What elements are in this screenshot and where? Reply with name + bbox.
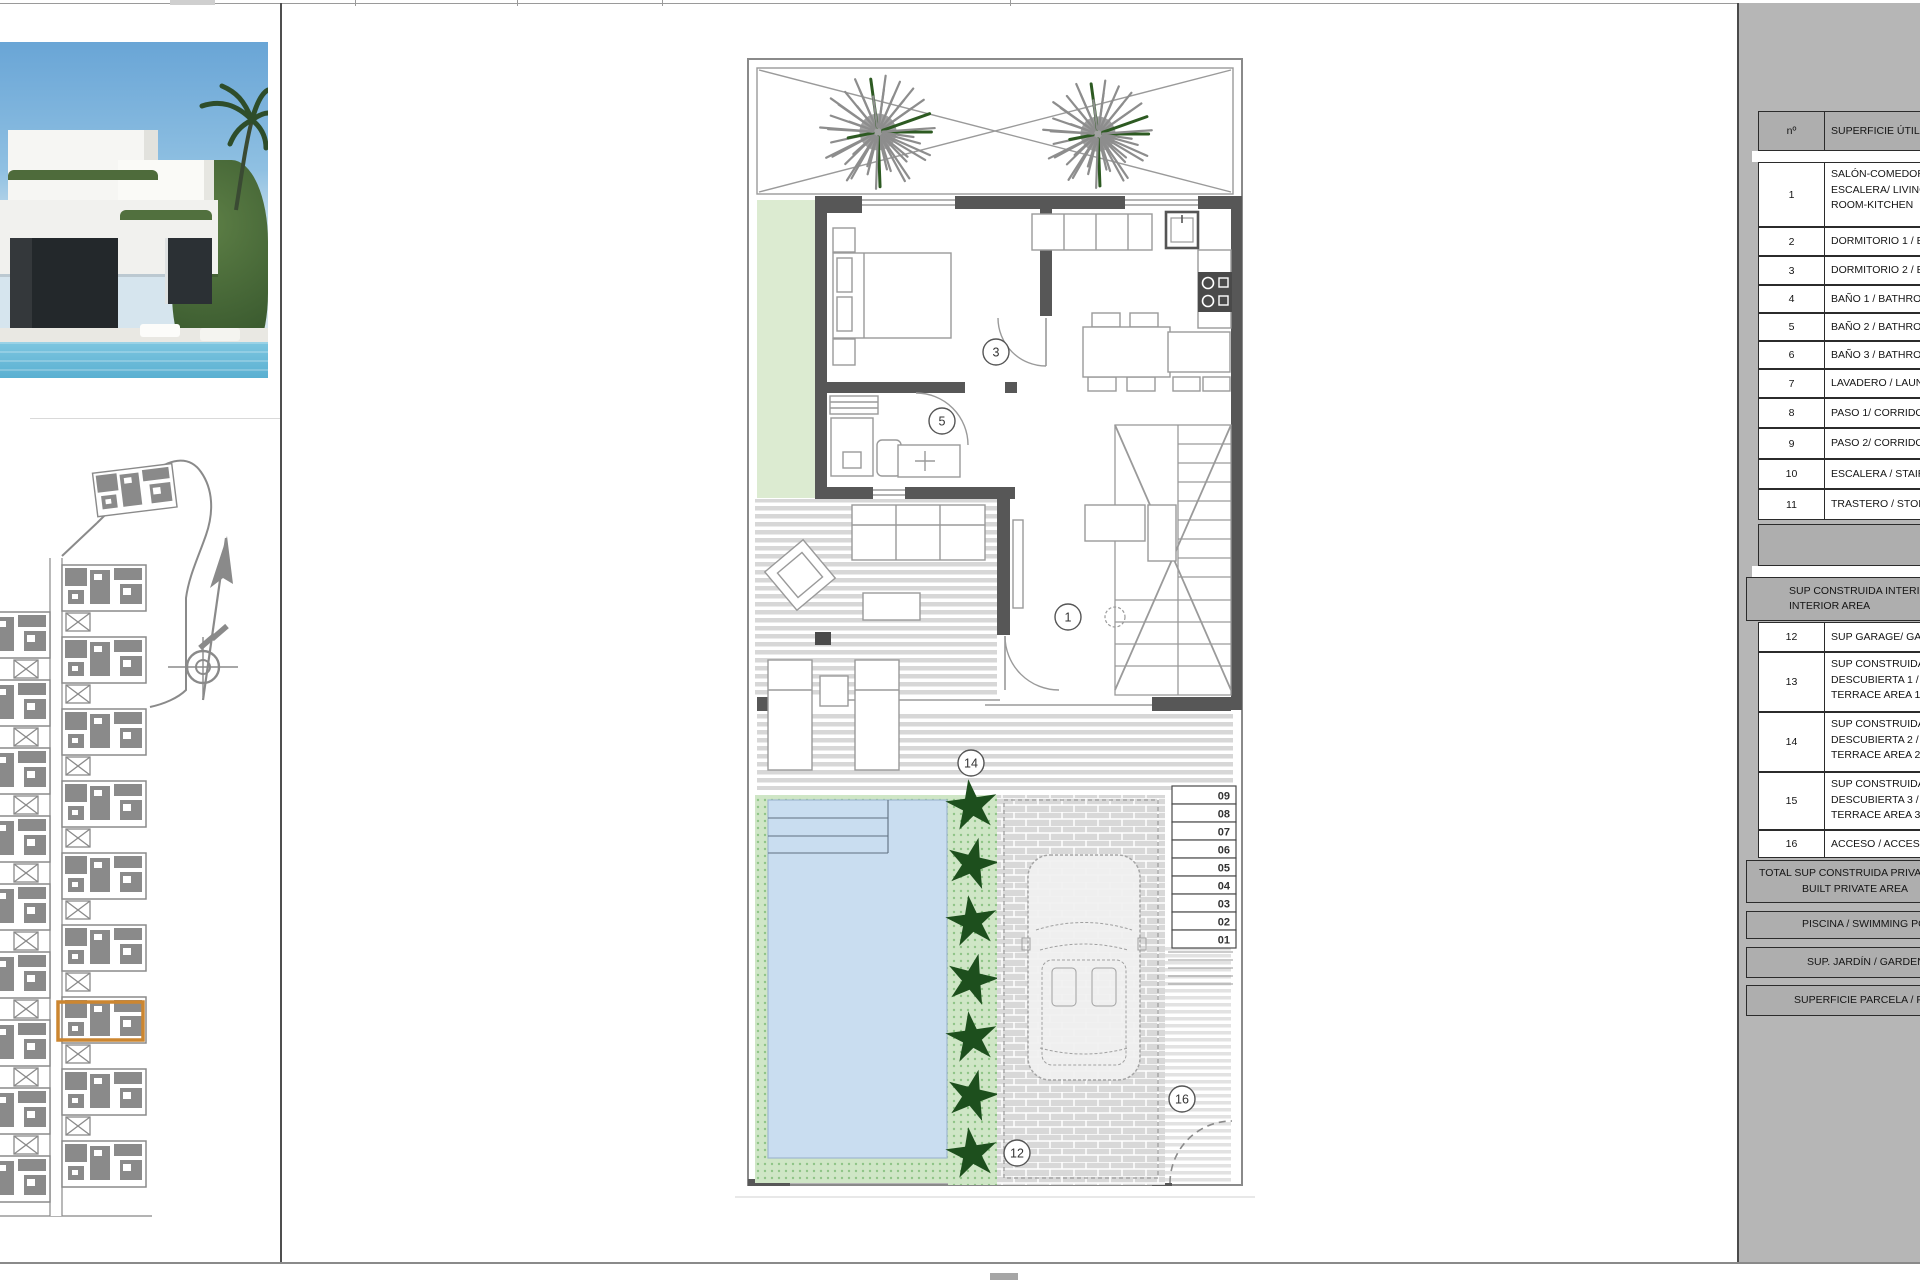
site-house-plot — [62, 997, 146, 1043]
site-house-plot — [62, 925, 146, 971]
room-label-number: 1 — [1065, 611, 1072, 625]
villa-render-photo — [0, 42, 268, 378]
access-strip — [1165, 945, 1231, 1183]
site-patio — [14, 728, 38, 746]
site-boundary — [62, 523, 97, 556]
frame-corner-mark — [170, 0, 215, 5]
swimming-pool — [768, 800, 947, 1158]
site-house-plot — [0, 1156, 50, 1202]
frame-tick — [517, 0, 518, 6]
stove-icon — [1198, 272, 1232, 312]
stair-step-number: 01 — [1218, 935, 1230, 947]
sheet-left-border — [280, 3, 282, 1262]
site-house-plot — [0, 1020, 50, 1066]
site-house-plot — [62, 1141, 146, 1187]
photo-glazed-opening — [10, 238, 118, 334]
site-patio — [66, 1117, 90, 1135]
site-patio — [14, 1000, 38, 1018]
frame-tick — [1010, 0, 1011, 6]
site-house-plot — [0, 952, 50, 998]
site-house-plot — [93, 464, 178, 517]
site-patio — [14, 660, 38, 678]
room-label-number: 16 — [1175, 1093, 1189, 1107]
site-house-plot — [0, 680, 50, 726]
site-patio — [14, 1136, 38, 1154]
sheet-bottom-border — [0, 1262, 1920, 1264]
sheet-top-border — [0, 3, 1920, 4]
site-patio — [66, 685, 90, 703]
site-patio — [66, 757, 90, 775]
kitchen-sink — [1166, 212, 1198, 248]
photo-lounger — [140, 324, 180, 337]
site-house-plot — [62, 853, 146, 899]
site-patio — [66, 829, 90, 847]
stair-step-number: 03 — [1218, 899, 1230, 911]
site-road — [50, 558, 62, 1216]
stair-step-number: 04 — [1218, 881, 1231, 893]
frame-tick — [662, 0, 663, 6]
room-label-number: 5 — [939, 415, 946, 429]
site-house-plot — [62, 565, 146, 611]
page-footer-mark — [990, 1273, 1018, 1280]
stair-step-number: 02 — [1218, 917, 1230, 929]
site-patio — [14, 796, 38, 814]
site-patio — [66, 1045, 90, 1063]
site-patio — [14, 1068, 38, 1086]
site-patio — [66, 613, 90, 631]
site-house-plot — [0, 884, 50, 930]
stair-step-number: 05 — [1218, 863, 1230, 875]
photo-separator-line — [30, 418, 280, 419]
site-house-plot — [0, 612, 50, 658]
frame-tick — [355, 0, 356, 6]
architectural-plan-sheet: { "colors": { "highlight": "#cc8630", "p… — [0, 0, 1920, 1280]
site-house-plots — [0, 565, 146, 1202]
site-house-plot — [0, 748, 50, 794]
garden-strip — [757, 200, 815, 498]
site-patio — [14, 932, 38, 950]
room-label-number: 3 — [993, 346, 1000, 360]
site-patio — [66, 901, 90, 919]
stair-step-number: 06 — [1218, 845, 1230, 857]
site-house-plot — [0, 816, 50, 862]
photo-palm-tree — [196, 82, 268, 212]
area-table-panel — [1737, 3, 1920, 1262]
site-house-plot — [62, 637, 146, 683]
site-patio — [14, 864, 38, 882]
room-label-number: 14 — [964, 757, 978, 771]
room-label-number: 12 — [1010, 1147, 1024, 1161]
stair-step-number: 09 — [1218, 791, 1230, 803]
site-plan — [0, 440, 250, 1240]
north-arrow — [168, 536, 238, 700]
photo-pool — [0, 342, 268, 378]
stair-step-number: 08 — [1218, 809, 1230, 821]
site-house-plot — [62, 1069, 146, 1115]
site-house-plot — [62, 781, 146, 827]
photo-planter — [8, 170, 158, 180]
terrace-deck — [757, 712, 1233, 790]
car-icon — [1022, 855, 1146, 1080]
stair-step-number: 07 — [1218, 827, 1230, 839]
photo-pool-ripples — [0, 342, 268, 378]
site-house-plot — [0, 1088, 50, 1134]
site-house-plot — [62, 709, 146, 755]
grill-icon — [815, 632, 831, 645]
photo-window — [165, 238, 212, 304]
site-patio — [66, 973, 90, 991]
stair-step-numbers: 090807060504030201 — [1172, 786, 1236, 948]
floor-plan: 090807060504030201 351141216 — [735, 45, 1255, 1210]
